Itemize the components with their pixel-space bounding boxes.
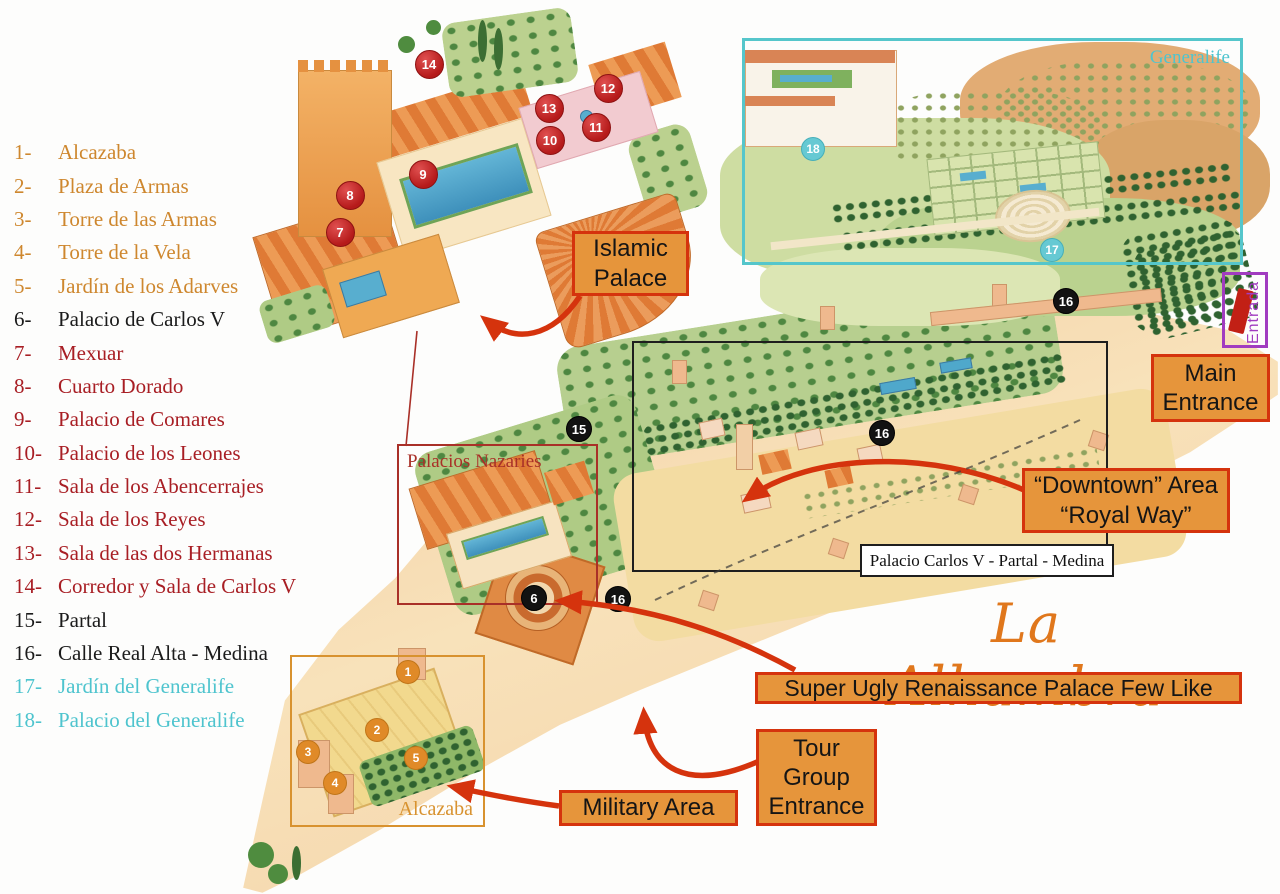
callout-downtown: “Downtown” Area “Royal Way” — [1022, 468, 1230, 533]
legend-item-label: Palacio de Comares — [58, 407, 225, 432]
legend-item-label: Plaza de Armas — [58, 174, 189, 199]
legend-item-1: 1-Alcazaba — [14, 136, 296, 169]
legend-item-number: 7- — [14, 341, 52, 366]
legend-item-label: Torre de las Armas — [58, 207, 217, 232]
map-marker-3: 3 — [296, 740, 320, 764]
legend-item-number: 2- — [14, 174, 52, 199]
legend-item-16: 16-Calle Real Alta - Medina — [14, 637, 296, 670]
palace-tree — [426, 20, 441, 35]
legend-item-18: 18-Palacio del Generalife — [14, 704, 296, 737]
map-marker-11: 11 — [582, 113, 611, 142]
legend-item-number: 3- — [14, 207, 52, 232]
map-marker-16: 16 — [605, 586, 631, 612]
map-marker-14: 14 — [415, 50, 444, 79]
legend-item-label: Sala de los Abencerrajes — [58, 474, 264, 499]
map-marker-2: 2 — [365, 718, 389, 742]
map-marker-5: 5 — [404, 746, 428, 770]
palace-tree — [398, 36, 415, 53]
map-marker-17: 17 — [1040, 238, 1064, 262]
legend-item-11: 11-Sala de los Abencerrajes — [14, 470, 296, 503]
map-marker-4: 4 — [323, 771, 347, 795]
map-marker-6: 6 — [521, 585, 547, 611]
legend-item-number: 10- — [14, 441, 52, 466]
callout-military-area: Military Area — [559, 790, 738, 826]
map-marker-13: 13 — [535, 94, 564, 123]
legend-item-number: 14- — [14, 574, 52, 599]
legend-item-17: 17-Jardín del Generalife — [14, 670, 296, 703]
legend-item-7: 7-Mexuar — [14, 336, 296, 369]
map-marker-1: 1 — [396, 660, 420, 684]
legend: 1-Alcazaba2-Plaza de Armas3-Torre de las… — [14, 136, 296, 737]
legend-item-number: 6- — [14, 307, 52, 332]
legend-item-15: 15-Partal — [14, 603, 296, 636]
palace-garden — [440, 6, 579, 98]
tip-cypress — [292, 846, 301, 880]
callout-tour-group: Tour Group Entrance — [756, 729, 877, 826]
map-marker-16: 16 — [1053, 288, 1079, 314]
map-marker-7: 7 — [326, 218, 355, 247]
map-marker-16: 16 — [869, 420, 895, 446]
legend-item-label: Palacio de Carlos V — [58, 307, 225, 332]
comares-tower — [298, 70, 392, 237]
legend-item-label: Sala de los Reyes — [58, 507, 206, 532]
palacios-nazaries-outline: Palacios Nazaries — [397, 444, 598, 605]
palace-cypress — [478, 20, 487, 62]
palace-cypress — [494, 28, 503, 70]
legend-item-number: 5- — [14, 274, 52, 299]
legend-item-number: 1- — [14, 140, 52, 165]
legend-item-number: 12- — [14, 507, 52, 532]
legend-item-label: Jardín del Generalife — [58, 674, 234, 699]
legend-item-4: 4-Torre de la Vela — [14, 236, 296, 269]
legend-item-label: Sala de las dos Hermanas — [58, 541, 273, 566]
legend-item-label: Palacio de los Leones — [58, 441, 241, 466]
tip-garden-tree — [248, 842, 274, 868]
legend-item-13: 13-Sala de las dos Hermanas — [14, 537, 296, 570]
legend-item-9: 9-Palacio de Comares — [14, 403, 296, 436]
legend-item-8: 8-Cuarto Dorado — [14, 370, 296, 403]
generalife-label: Generalife — [1150, 47, 1230, 69]
legend-item-14: 14-Corredor y Sala de Carlos V — [14, 570, 296, 603]
legend-item-number: 8- — [14, 374, 52, 399]
alhambra-map-page: { "title": "La Alhambra", "colors": { "c… — [0, 0, 1280, 894]
palacios-nazaries-label: Palacios Nazaries — [407, 451, 542, 473]
callout-super-ugly: Super Ugly Renaissance Palace Few Like — [755, 672, 1242, 704]
legend-item-label: Mexuar — [58, 341, 123, 366]
tip-garden-tree — [268, 864, 288, 884]
legend-item-3: 3-Torre de las Armas — [14, 203, 296, 236]
legend-item-6: 6-Palacio de Carlos V — [14, 303, 296, 336]
legend-item-label: Torre de la Vela — [58, 240, 191, 265]
legend-item-number: 4- — [14, 240, 52, 265]
legend-item-12: 12-Sala de los Reyes — [14, 503, 296, 536]
inset-connector-line — [406, 331, 417, 446]
alcazaba-region-outline: Alcazaba — [290, 655, 485, 827]
legend-item-number: 9- — [14, 407, 52, 432]
legend-item-5: 5-Jardín de los Adarves — [14, 270, 296, 303]
map-marker-15: 15 — [566, 416, 592, 442]
legend-item-label: Corredor y Sala de Carlos V — [58, 574, 296, 599]
legend-item-2: 2-Plaza de Armas — [14, 169, 296, 202]
legend-item-label: Palacio del Generalife — [58, 708, 245, 733]
map-marker-10: 10 — [536, 126, 565, 155]
carlos-v-strip-label: Palacio Carlos V - Partal - Medina — [860, 544, 1114, 577]
arrow-tour-group — [644, 714, 757, 775]
legend-item-number: 11- — [14, 474, 52, 499]
alcazaba-label: Alcazaba — [399, 798, 473, 821]
legend-item-number: 16- — [14, 641, 52, 666]
legend-item-number: 18- — [14, 708, 52, 733]
legend-item-number: 15- — [14, 608, 52, 633]
callout-islamic-palace: Islamic Palace — [572, 231, 689, 296]
north-wall-tower — [820, 306, 835, 330]
entrada-region-outline: Entrada — [1222, 272, 1268, 348]
legend-item-label: Alcazaba — [58, 140, 136, 165]
legend-item-number: 13- — [14, 541, 52, 566]
legend-item-number: 17- — [14, 674, 52, 699]
carlos-v-region-outline — [632, 341, 1108, 572]
comares-tower-crenellation — [298, 60, 390, 72]
legend-item-10: 10-Palacio de los Leones — [14, 437, 296, 470]
callout-main-entrance: Main Entrance — [1151, 354, 1270, 422]
map-marker-8: 8 — [336, 181, 365, 210]
map-marker-18: 18 — [801, 137, 825, 161]
map-marker-12: 12 — [594, 74, 623, 103]
legend-item-label: Cuarto Dorado — [58, 374, 183, 399]
legend-item-label: Jardín de los Adarves — [58, 274, 238, 299]
legend-item-label: Partal — [58, 608, 107, 633]
entrada-label: Entrada — [1245, 281, 1263, 344]
map-marker-9: 9 — [409, 160, 438, 189]
legend-item-label: Calle Real Alta - Medina — [58, 641, 268, 666]
